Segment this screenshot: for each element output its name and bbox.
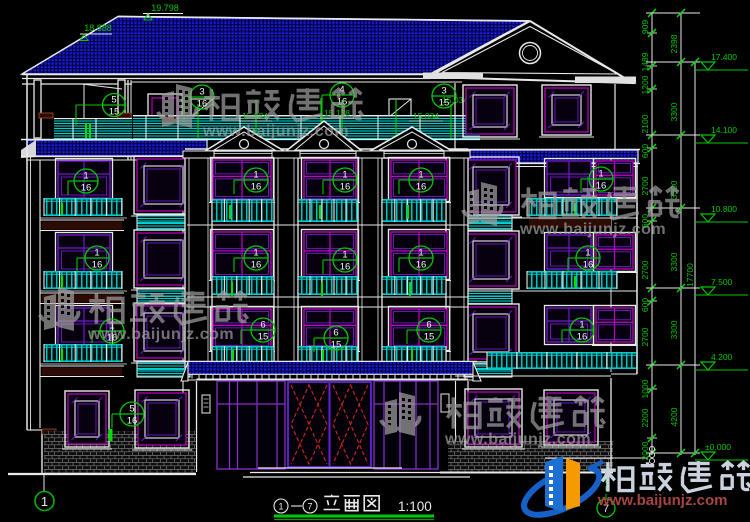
svg-text:16: 16 xyxy=(577,332,588,343)
svg-text:15: 15 xyxy=(331,340,342,351)
svg-text:1200: 1200 xyxy=(640,75,650,94)
svg-text:1: 1 xyxy=(278,502,283,512)
svg-text:1: 1 xyxy=(94,248,99,259)
svg-text:2700: 2700 xyxy=(640,260,650,279)
svg-text:7: 7 xyxy=(307,502,312,512)
svg-text:16: 16 xyxy=(251,182,262,193)
svg-text:5: 5 xyxy=(111,95,116,106)
svg-text:1: 1 xyxy=(41,494,48,509)
svg-text:4.200: 4.200 xyxy=(711,352,733,362)
svg-text:16: 16 xyxy=(340,262,351,273)
svg-text:16: 16 xyxy=(81,183,92,194)
svg-text:1: 1 xyxy=(253,170,258,181)
svg-text:909: 909 xyxy=(640,20,650,34)
svg-text:5: 5 xyxy=(129,404,134,415)
svg-text:18.888: 18.888 xyxy=(84,23,112,33)
svg-text:2700: 2700 xyxy=(640,176,650,195)
svg-text:3300: 3300 xyxy=(669,320,679,339)
svg-text:6: 6 xyxy=(260,320,265,331)
svg-text:16: 16 xyxy=(340,182,351,193)
svg-text:14.100: 14.100 xyxy=(711,125,737,135)
svg-text:1000: 1000 xyxy=(640,379,650,398)
svg-text:2000: 2000 xyxy=(640,441,650,460)
svg-text:15.034: 15.034 xyxy=(413,111,439,121)
svg-text:16: 16 xyxy=(416,260,427,271)
svg-text:15: 15 xyxy=(439,98,450,109)
svg-text:16: 16 xyxy=(416,182,427,193)
svg-text:1489: 1489 xyxy=(640,52,650,71)
svg-text:3300: 3300 xyxy=(669,252,679,271)
svg-text:16: 16 xyxy=(92,260,103,271)
svg-text:6: 6 xyxy=(333,328,338,339)
svg-text:1: 1 xyxy=(342,170,347,181)
svg-text:10.800: 10.800 xyxy=(711,204,737,214)
svg-text:6: 6 xyxy=(426,320,431,331)
svg-text:3: 3 xyxy=(441,86,446,97)
svg-text:600: 600 xyxy=(640,144,650,158)
svg-text:www.baijunjz.com: www.baijunjz.com xyxy=(444,431,591,448)
svg-text:17700: 17700 xyxy=(685,263,695,287)
svg-text:16: 16 xyxy=(127,416,138,427)
svg-text:www.baijunjz.com: www.baijunjz.com xyxy=(519,221,666,238)
svg-text:1: 1 xyxy=(342,250,347,261)
svg-text:3300: 3300 xyxy=(669,102,679,121)
svg-text:15: 15 xyxy=(109,107,120,118)
svg-text:2200: 2200 xyxy=(640,408,650,427)
svg-text:600: 600 xyxy=(640,298,650,312)
svg-text:2398: 2398 xyxy=(669,34,679,53)
svg-text:www.baijunjz.com: www.baijunjz.com xyxy=(87,326,234,343)
svg-text:16: 16 xyxy=(251,260,262,271)
svg-text:17.400: 17.400 xyxy=(711,52,737,62)
svg-text:±0.000: ±0.000 xyxy=(705,442,731,452)
svg-text:15: 15 xyxy=(258,332,269,343)
svg-text:4200: 4200 xyxy=(669,407,679,426)
svg-text:1: 1 xyxy=(83,171,88,182)
svg-text:2700: 2700 xyxy=(640,327,650,346)
svg-text:19.798: 19.798 xyxy=(151,3,179,13)
svg-text:1: 1 xyxy=(253,248,258,259)
svg-text:1: 1 xyxy=(418,170,423,181)
svg-text:3: 3 xyxy=(199,87,204,98)
svg-text:1: 1 xyxy=(579,320,584,331)
svg-text:1: 1 xyxy=(418,248,423,259)
svg-text:15: 15 xyxy=(424,332,435,343)
svg-text:16: 16 xyxy=(583,260,594,271)
svg-text:7.500: 7.500 xyxy=(711,277,733,287)
svg-text:1:100: 1:100 xyxy=(398,499,432,514)
svg-text:1: 1 xyxy=(585,248,590,259)
svg-text:16: 16 xyxy=(596,181,607,192)
svg-text:2100: 2100 xyxy=(640,114,650,133)
svg-text:www.baijunjz.com: www.baijunjz.com xyxy=(597,492,727,509)
svg-text:1: 1 xyxy=(598,169,603,180)
svg-text:www.baijunjz.com: www.baijunjz.com xyxy=(202,123,349,140)
